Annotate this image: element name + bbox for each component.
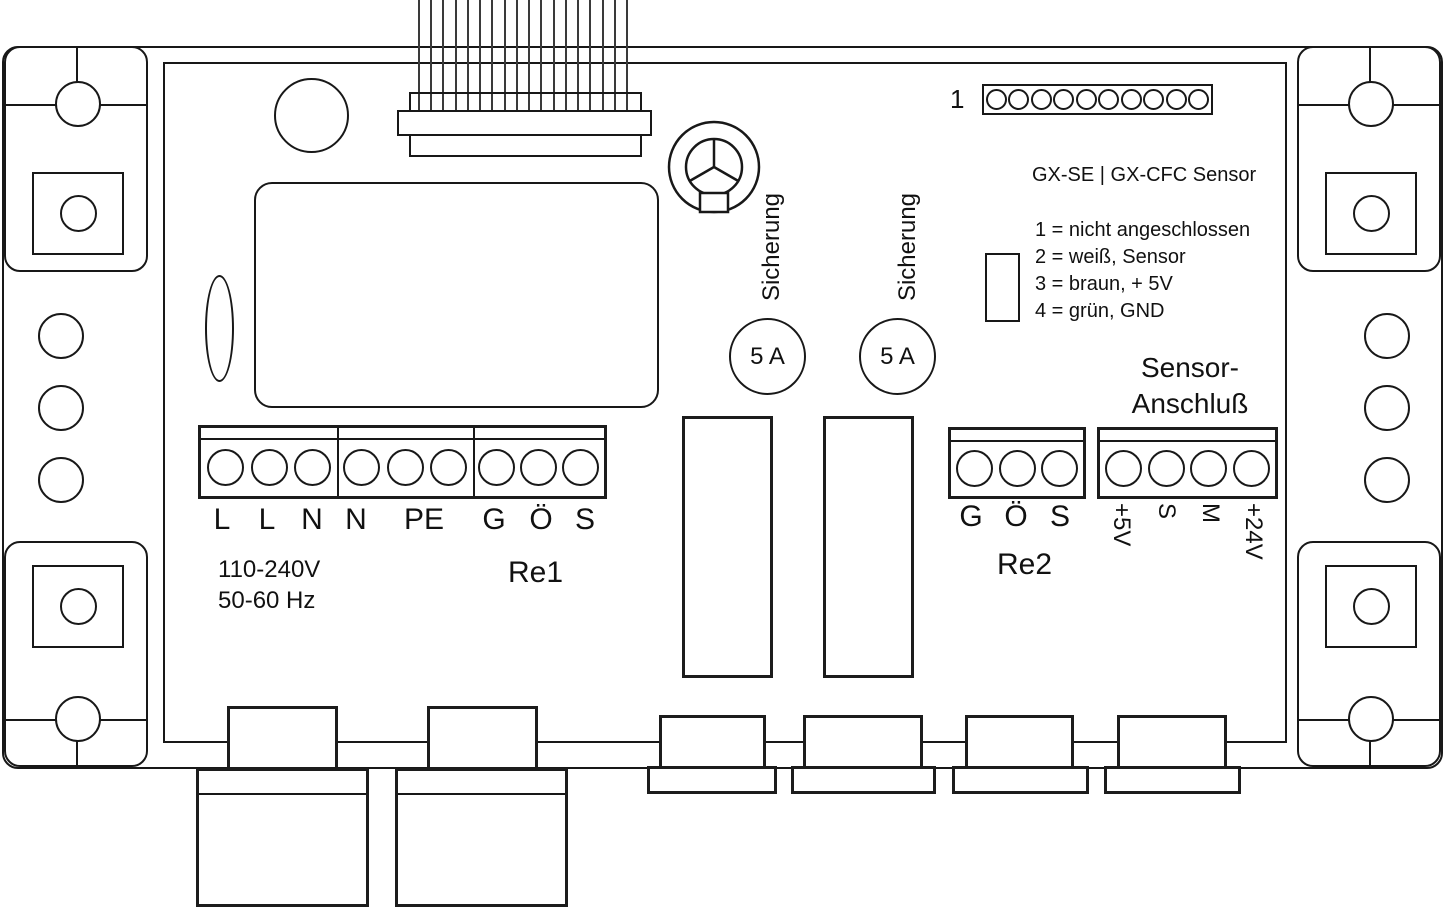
- spade-connector: [647, 766, 777, 794]
- terminal-hole: [1041, 450, 1078, 487]
- transformer-body: [196, 768, 369, 907]
- potentiometer-icon: [665, 118, 763, 216]
- terminal-label: Ö: [529, 503, 552, 537]
- sensor-title-line1: Sensor-: [1100, 350, 1280, 386]
- plate-hole: [1364, 385, 1410, 431]
- bottom-tab: [427, 706, 538, 770]
- oval-cutout: [205, 275, 234, 382]
- bottom-tab: [659, 715, 766, 770]
- header-pin: [986, 89, 1007, 110]
- corner-bracket-bottom-right: [1297, 541, 1441, 767]
- header-pin: [1143, 89, 1164, 110]
- terminal-section-neutral-pe: [337, 438, 473, 496]
- fuse-1-label: Sicherung: [757, 187, 787, 307]
- terminal-section-relay1: [473, 438, 604, 496]
- power-terminal-block: [198, 425, 607, 499]
- mount-hole: [55, 81, 101, 127]
- terminal-hole: [956, 450, 993, 487]
- mount-hole: [1348, 696, 1394, 742]
- terminal-label: N: [301, 503, 323, 537]
- header-pin: [1121, 89, 1142, 110]
- legend-line: 2 = weiß, Sensor: [1035, 244, 1250, 271]
- frequency-rating: 50-60 Hz: [218, 587, 315, 615]
- sensor-terminal-block: [1097, 427, 1278, 499]
- plate-hole: [38, 457, 84, 503]
- transformer-body: [395, 768, 568, 907]
- spade-connector: [952, 766, 1089, 794]
- corner-bracket-top-right: [1297, 46, 1441, 272]
- fuse-2-label: Sicherung: [893, 187, 923, 307]
- terminal-label: L: [214, 503, 231, 537]
- mount-hole: [1353, 588, 1390, 625]
- terminal-hole: [520, 449, 557, 486]
- board-hole: [274, 78, 349, 153]
- mount-hole: [1348, 81, 1394, 127]
- header-pin: [1031, 89, 1052, 110]
- terminal-hole: [207, 449, 244, 486]
- terminal-hole: [430, 449, 467, 486]
- fuse-label-text: Sicherung: [758, 193, 786, 301]
- plate-hole: [38, 313, 84, 359]
- spade-connector: [1104, 766, 1241, 794]
- header-pin: [1008, 89, 1029, 110]
- plate-hole: [1364, 313, 1410, 359]
- sensor-type-title: GX-SE | GX-CFC Sensor: [1032, 164, 1256, 187]
- mount-hole: [55, 696, 101, 742]
- terminal-hole: [294, 449, 331, 486]
- spade-connector: [791, 766, 936, 794]
- mount-square: [32, 172, 124, 255]
- mount-square: [1325, 172, 1417, 255]
- mount-hole: [60, 195, 97, 232]
- relay-2-body: [823, 416, 914, 678]
- header-pin: [1053, 89, 1074, 110]
- legend-line: 1 = nicht angeschlossen: [1035, 217, 1250, 244]
- transformer-line: [398, 793, 565, 795]
- header-pin: [1076, 89, 1097, 110]
- corner-bracket-top-left: [4, 46, 148, 272]
- sensor-pins: [1100, 440, 1275, 496]
- header-pin: [1166, 89, 1187, 110]
- sensor-pin-label: M: [1196, 503, 1224, 523]
- display-module: [254, 182, 659, 408]
- wiring-diagram: Sicherung Sicherung 5 A 5 A L L N N PE G…: [0, 0, 1445, 909]
- terminal-hole: [999, 450, 1036, 487]
- terminal-hole: [1190, 450, 1227, 487]
- mount-square: [32, 565, 124, 648]
- relay2-pins: [951, 440, 1083, 496]
- terminal-label: Ö: [1004, 500, 1027, 534]
- header-pin: [1098, 89, 1119, 110]
- pin-legend: 1 = nicht angeschlossen 2 = weiß, Sensor…: [1035, 217, 1250, 325]
- fuse-2: 5 A: [859, 318, 936, 395]
- pin-header: [982, 84, 1213, 115]
- plate-hole: [1364, 457, 1410, 503]
- fuse-1: 5 A: [729, 318, 806, 395]
- legend-connector-symbol: [985, 253, 1020, 322]
- relay1-label: Re1: [508, 556, 563, 590]
- terminal-section-mains: [201, 438, 337, 496]
- terminal-label: G: [959, 500, 982, 534]
- terminal-label: N: [345, 503, 367, 537]
- terminal-label: PE: [404, 503, 444, 537]
- bottom-tab: [1117, 715, 1227, 770]
- terminal-label: S: [575, 503, 595, 537]
- mount-hole: [60, 588, 97, 625]
- relay-1-body: [682, 416, 773, 678]
- pin1-index: 1: [950, 84, 964, 115]
- sensor-pin-label: +5V: [1107, 503, 1135, 546]
- transformer-line: [199, 793, 366, 795]
- terminal-hole: [562, 449, 599, 486]
- sensor-title: Sensor- Anschluß: [1100, 350, 1280, 422]
- plate-hole: [38, 385, 84, 431]
- mount-hole: [1353, 195, 1390, 232]
- fuse-rating: 5 A: [750, 343, 785, 371]
- terminal-hole: [1233, 450, 1270, 487]
- terminal-hole: [251, 449, 288, 486]
- ribbon-connector-inner: [397, 110, 652, 136]
- fuse-rating: 5 A: [880, 343, 915, 371]
- bottom-tab: [803, 715, 923, 770]
- terminal-hole: [478, 449, 515, 486]
- mount-square: [1325, 565, 1417, 648]
- bottom-tab: [965, 715, 1074, 770]
- terminal-hole: [387, 449, 424, 486]
- relay2-terminal-block: [948, 427, 1086, 499]
- legend-line: 3 = braun, + 5V: [1035, 271, 1250, 298]
- terminal-hole: [1148, 450, 1185, 487]
- terminal-label: S: [1050, 500, 1070, 534]
- bottom-tab: [227, 706, 338, 770]
- terminal-hole: [1105, 450, 1142, 487]
- header-pin: [1188, 89, 1209, 110]
- terminal-hole: [343, 449, 380, 486]
- sensor-pin-label: S: [1152, 503, 1180, 519]
- sensor-pin-label: +24V: [1239, 503, 1267, 560]
- voltage-rating: 110-240V: [218, 556, 320, 584]
- terminal-label: G: [482, 503, 505, 537]
- corner-bracket-bottom-left: [4, 541, 148, 767]
- terminal-label: L: [259, 503, 276, 537]
- legend-line: 4 = grün, GND: [1035, 298, 1250, 325]
- relay2-label: Re2: [997, 548, 1052, 582]
- fuse-label-text: Sicherung: [894, 193, 922, 301]
- sensor-title-line2: Anschluß: [1100, 386, 1280, 422]
